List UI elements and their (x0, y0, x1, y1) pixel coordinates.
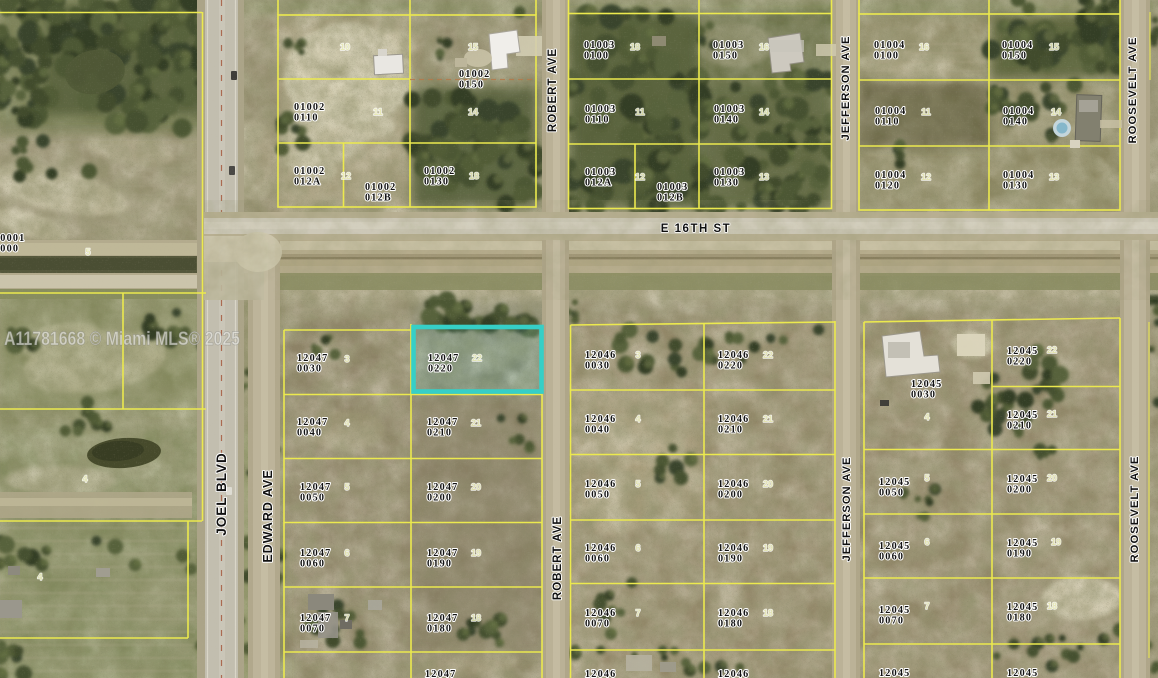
svg-text:0120: 0120 (875, 181, 900, 192)
svg-text:3: 3 (344, 354, 349, 364)
svg-text:012A: 012A (294, 177, 321, 188)
svg-text:20: 20 (471, 482, 481, 492)
svg-text:0000: 0000 (0, 244, 19, 255)
svg-text:01004: 01004 (1003, 170, 1034, 181)
svg-text:12047: 12047 (427, 548, 458, 559)
svg-text:12045: 12045 (1007, 538, 1038, 549)
svg-text:0140: 0140 (714, 115, 739, 126)
svg-text:0180: 0180 (427, 624, 452, 635)
svg-text:0210: 0210 (1007, 421, 1032, 432)
svg-text:012A: 012A (585, 178, 612, 189)
svg-text:12: 12 (921, 172, 931, 182)
svg-text:JEFFERSON AVE: JEFFERSON AVE (841, 456, 853, 561)
svg-text:0070: 0070 (879, 616, 904, 627)
svg-text:12046: 12046 (718, 608, 749, 619)
svg-text:11: 11 (921, 107, 931, 117)
svg-text:12047: 12047 (427, 613, 458, 624)
svg-text:19: 19 (763, 543, 773, 553)
svg-text:12046: 12046 (585, 608, 616, 619)
svg-text:0220: 0220 (428, 364, 453, 375)
svg-text:0210: 0210 (427, 428, 452, 439)
svg-text:A11781668 © Miami MLS® 2025: A11781668 © Miami MLS® 2025 (4, 329, 240, 350)
svg-text:0150: 0150 (1002, 51, 1027, 62)
svg-text:12047: 12047 (300, 613, 331, 624)
svg-text:0150: 0150 (459, 80, 484, 91)
svg-text:21: 21 (1047, 409, 1057, 419)
svg-text:12045: 12045 (1007, 668, 1038, 678)
svg-text:12046: 12046 (718, 543, 749, 554)
svg-text:0190: 0190 (1007, 549, 1032, 560)
svg-text:0180: 0180 (718, 619, 743, 630)
svg-text:19: 19 (471, 548, 481, 558)
svg-text:ROOSEVELT AVE: ROOSEVELT AVE (1129, 456, 1141, 563)
svg-text:15: 15 (1049, 42, 1059, 52)
svg-text:0220: 0220 (718, 361, 743, 372)
svg-text:00001: 00001 (0, 233, 25, 244)
svg-text:12047: 12047 (300, 482, 331, 493)
svg-text:14: 14 (468, 107, 478, 117)
svg-text:12045: 12045 (1007, 474, 1038, 485)
svg-text:18: 18 (1047, 601, 1057, 611)
svg-text:EDWARD AVE: EDWARD AVE (261, 469, 275, 562)
svg-text:01003: 01003 (585, 167, 616, 178)
svg-text:3: 3 (635, 350, 640, 360)
svg-text:0060: 0060 (585, 554, 610, 565)
svg-text:12045: 12045 (879, 668, 910, 678)
svg-text:12046: 12046 (585, 543, 616, 554)
svg-text:12047: 12047 (297, 353, 328, 364)
svg-text:0130: 0130 (714, 178, 739, 189)
svg-text:01003: 01003 (657, 182, 688, 193)
svg-text:01002: 01002 (294, 166, 325, 177)
svg-text:12047: 12047 (427, 417, 458, 428)
svg-text:18: 18 (471, 613, 481, 623)
svg-text:19: 19 (1051, 537, 1061, 547)
svg-text:12046: 12046 (585, 479, 616, 490)
svg-text:JEFFERSON AVE: JEFFERSON AVE (840, 35, 852, 140)
svg-text:0030: 0030 (911, 390, 936, 401)
svg-text:22: 22 (472, 353, 482, 363)
svg-text:12045: 12045 (911, 379, 942, 390)
svg-text:0110: 0110 (585, 115, 610, 126)
svg-text:01004: 01004 (875, 170, 906, 181)
svg-text:21: 21 (471, 418, 481, 428)
svg-text:0070: 0070 (300, 624, 325, 635)
svg-text:12045: 12045 (1007, 602, 1038, 613)
svg-text:E 16TH ST: E 16TH ST (661, 223, 731, 235)
svg-text:18: 18 (763, 608, 773, 618)
svg-text:4: 4 (344, 418, 349, 428)
svg-text:0150: 0150 (713, 51, 738, 62)
svg-text:12: 12 (635, 172, 645, 182)
svg-text:21: 21 (763, 414, 773, 424)
svg-text:0100: 0100 (874, 51, 899, 62)
svg-text:01003: 01003 (713, 40, 744, 51)
svg-text:01004: 01004 (1002, 40, 1033, 51)
svg-text:4: 4 (635, 414, 640, 424)
svg-text:0200: 0200 (1007, 485, 1032, 496)
svg-text:12045: 12045 (879, 477, 910, 488)
svg-text:0140: 0140 (1003, 117, 1028, 128)
svg-text:ROBERT AVE: ROBERT AVE (547, 48, 559, 132)
svg-text:01003: 01003 (714, 104, 745, 115)
svg-text:01002: 01002 (459, 69, 490, 80)
svg-text:7: 7 (344, 613, 349, 623)
svg-text:14: 14 (1051, 107, 1061, 117)
svg-text:0070: 0070 (585, 619, 610, 630)
svg-text:12047: 12047 (425, 669, 456, 678)
svg-text:0030: 0030 (297, 364, 322, 375)
svg-text:14: 14 (759, 107, 769, 117)
svg-text:01002: 01002 (424, 166, 455, 177)
svg-text:12046: 12046 (585, 414, 616, 425)
svg-text:4: 4 (82, 474, 87, 484)
svg-text:12: 12 (341, 171, 351, 181)
svg-text:11: 11 (373, 107, 383, 117)
svg-text:12047: 12047 (428, 353, 459, 364)
svg-text:01003: 01003 (585, 104, 616, 115)
svg-text:22: 22 (763, 350, 773, 360)
svg-text:12046: 12046 (718, 479, 749, 490)
svg-text:13: 13 (1049, 172, 1059, 182)
svg-text:11: 11 (635, 107, 645, 117)
svg-text:01002: 01002 (365, 182, 396, 193)
svg-text:5: 5 (344, 482, 349, 492)
svg-text:12045: 12045 (879, 541, 910, 552)
svg-text:12047: 12047 (297, 417, 328, 428)
svg-text:0100: 0100 (584, 51, 609, 62)
svg-text:7: 7 (924, 601, 929, 611)
svg-text:01004: 01004 (874, 40, 905, 51)
svg-text:20: 20 (763, 479, 773, 489)
svg-text:5: 5 (85, 247, 90, 257)
svg-text:0210: 0210 (718, 425, 743, 436)
svg-text:01004: 01004 (1003, 106, 1034, 117)
svg-text:0060: 0060 (879, 552, 904, 563)
svg-text:0060: 0060 (300, 559, 325, 570)
svg-text:012B: 012B (365, 193, 392, 204)
svg-text:4: 4 (924, 412, 929, 422)
svg-text:16: 16 (919, 42, 929, 52)
svg-text:18: 18 (469, 171, 479, 181)
svg-text:0030: 0030 (585, 361, 610, 372)
svg-text:13: 13 (759, 172, 769, 182)
svg-text:0110: 0110 (875, 117, 900, 128)
svg-text:18: 18 (630, 42, 640, 52)
svg-text:12046: 12046 (585, 350, 616, 361)
svg-text:4: 4 (37, 572, 42, 582)
svg-text:12046: 12046 (718, 350, 749, 361)
svg-text:12047: 12047 (427, 482, 458, 493)
svg-text:22: 22 (1047, 345, 1057, 355)
svg-text:12046: 12046 (585, 669, 616, 678)
svg-text:10: 10 (340, 42, 350, 52)
svg-text:0130: 0130 (424, 177, 449, 188)
svg-text:6: 6 (344, 548, 349, 558)
svg-text:5: 5 (924, 473, 929, 483)
svg-text:0200: 0200 (718, 490, 743, 501)
svg-text:0190: 0190 (427, 559, 452, 570)
svg-text:0180: 0180 (1007, 613, 1032, 624)
svg-text:12045: 12045 (1007, 410, 1038, 421)
svg-text:16: 16 (759, 42, 769, 52)
svg-text:0050: 0050 (585, 490, 610, 501)
svg-text:ROOSEVELT AVE: ROOSEVELT AVE (1127, 37, 1139, 144)
svg-text:01002: 01002 (294, 102, 325, 113)
svg-text:0190: 0190 (718, 554, 743, 565)
svg-text:01004: 01004 (875, 106, 906, 117)
svg-text:01003: 01003 (714, 167, 745, 178)
svg-text:ROBERT AVE: ROBERT AVE (552, 516, 564, 600)
svg-text:7: 7 (635, 608, 640, 618)
svg-text:15: 15 (468, 42, 478, 52)
svg-text:12046: 12046 (718, 669, 749, 678)
svg-text:12045: 12045 (1007, 346, 1038, 357)
svg-text:0110: 0110 (294, 113, 319, 124)
svg-text:0130: 0130 (1003, 181, 1028, 192)
svg-text:0220: 0220 (1007, 357, 1032, 368)
svg-text:5: 5 (635, 479, 640, 489)
svg-text:12047: 12047 (300, 548, 331, 559)
svg-text:0200: 0200 (427, 493, 452, 504)
svg-text:6: 6 (924, 537, 929, 547)
svg-text:12045: 12045 (879, 605, 910, 616)
svg-text:6: 6 (635, 543, 640, 553)
svg-text:JOEL BLVD: JOEL BLVD (214, 452, 229, 536)
svg-text:20: 20 (1047, 473, 1057, 483)
svg-text:0040: 0040 (297, 428, 322, 439)
svg-text:0050: 0050 (300, 493, 325, 504)
svg-text:0040: 0040 (585, 425, 610, 436)
svg-text:12046: 12046 (718, 414, 749, 425)
svg-text:0050: 0050 (879, 488, 904, 499)
svg-text:01003: 01003 (584, 40, 615, 51)
svg-text:012B: 012B (657, 193, 684, 204)
